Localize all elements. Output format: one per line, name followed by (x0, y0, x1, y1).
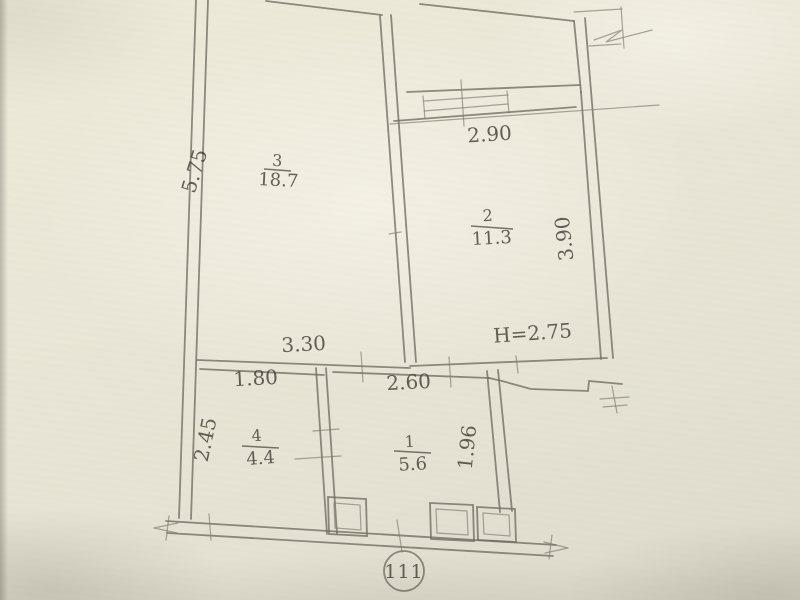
floor-plan-photo: 3 18.7 2 11.3 4 4.4 1 5.6 5.75 2.90 3.90… (0, 0, 800, 600)
photo-vignette (0, 0, 800, 600)
